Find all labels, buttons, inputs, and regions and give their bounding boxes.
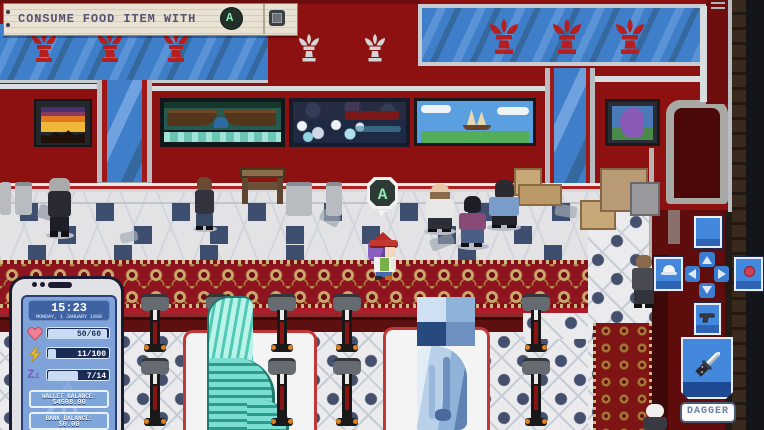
svg-text:A: A xyxy=(378,186,388,204)
